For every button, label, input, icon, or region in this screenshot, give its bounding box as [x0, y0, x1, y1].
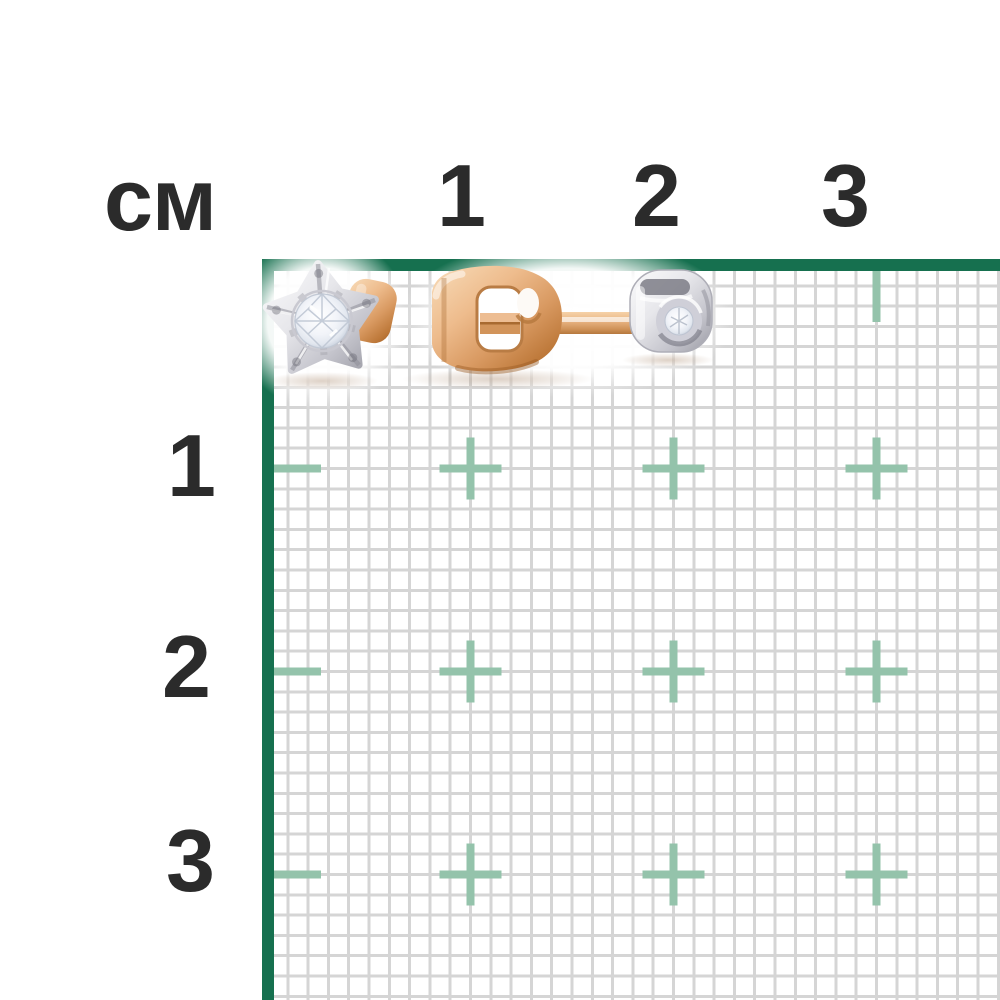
- earrings-product-photo: [0, 0, 1000, 1000]
- shadow-head: [622, 353, 714, 367]
- earring-head-side: [630, 270, 712, 352]
- size-chart-canvas: см 1 2 3 1 2 3: [0, 0, 1000, 1000]
- shadow-front: [266, 372, 378, 390]
